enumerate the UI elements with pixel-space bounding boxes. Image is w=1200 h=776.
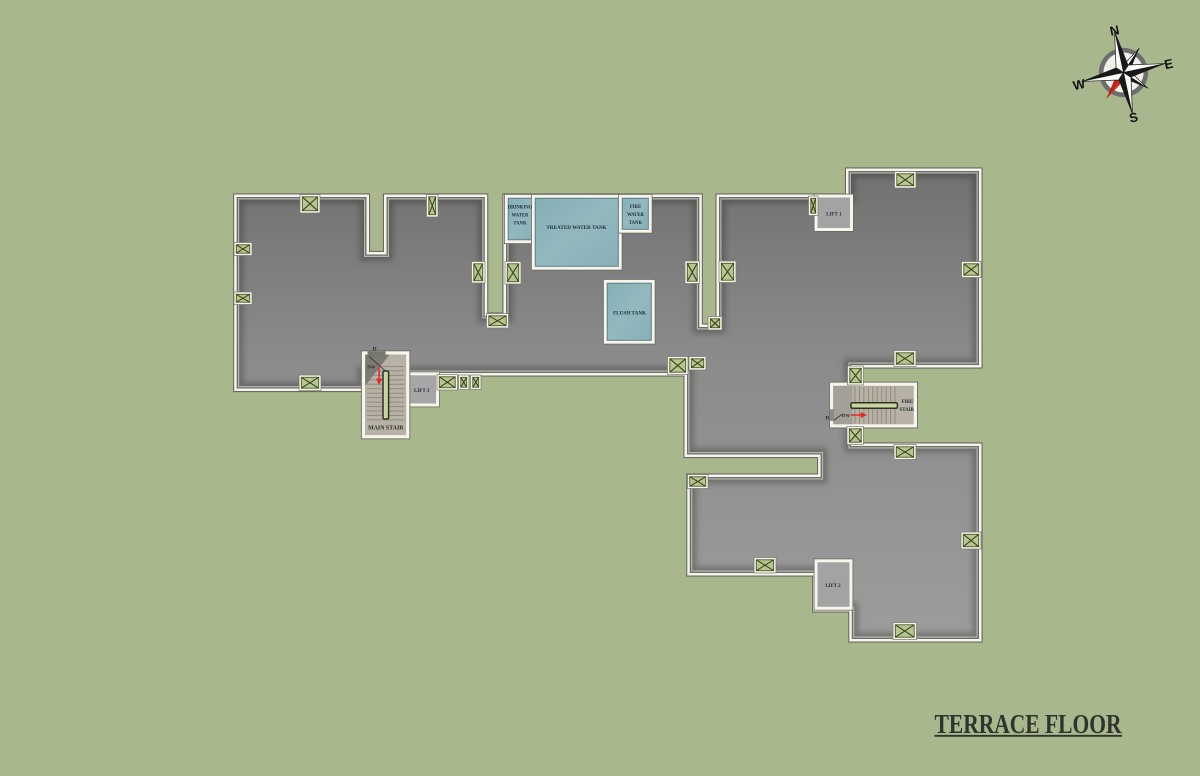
svg-text:LIFT 2: LIFT 2 — [825, 584, 841, 589]
svg-text:FIRE: FIRE — [630, 205, 641, 210]
svg-text:LIFT 3: LIFT 3 — [414, 389, 430, 394]
svg-text:D: D — [372, 347, 376, 353]
svg-text:TREATED WATER TANK: TREATED WATER TANK — [546, 225, 606, 231]
svg-text:D: D — [825, 416, 829, 422]
svg-text:DW: DW — [367, 364, 375, 369]
svg-text:FLUSH TANK: FLUSH TANK — [613, 311, 646, 317]
svg-text:TERRACE FLOOR: TERRACE FLOOR — [935, 708, 1123, 739]
svg-text:TANK: TANK — [513, 222, 527, 227]
svg-text:MAIN STAIR: MAIN STAIR — [368, 425, 404, 431]
svg-text:WATER: WATER — [627, 213, 644, 218]
svg-text:LIFT 1: LIFT 1 — [826, 213, 842, 218]
svg-text:TANK: TANK — [629, 221, 643, 226]
svg-text:DRINKING: DRINKING — [508, 206, 533, 211]
svg-text:DW: DW — [842, 413, 850, 418]
svg-text:FIRE: FIRE — [901, 400, 913, 405]
svg-text:WATER: WATER — [512, 214, 529, 219]
svg-text:STAIR: STAIR — [900, 408, 915, 413]
